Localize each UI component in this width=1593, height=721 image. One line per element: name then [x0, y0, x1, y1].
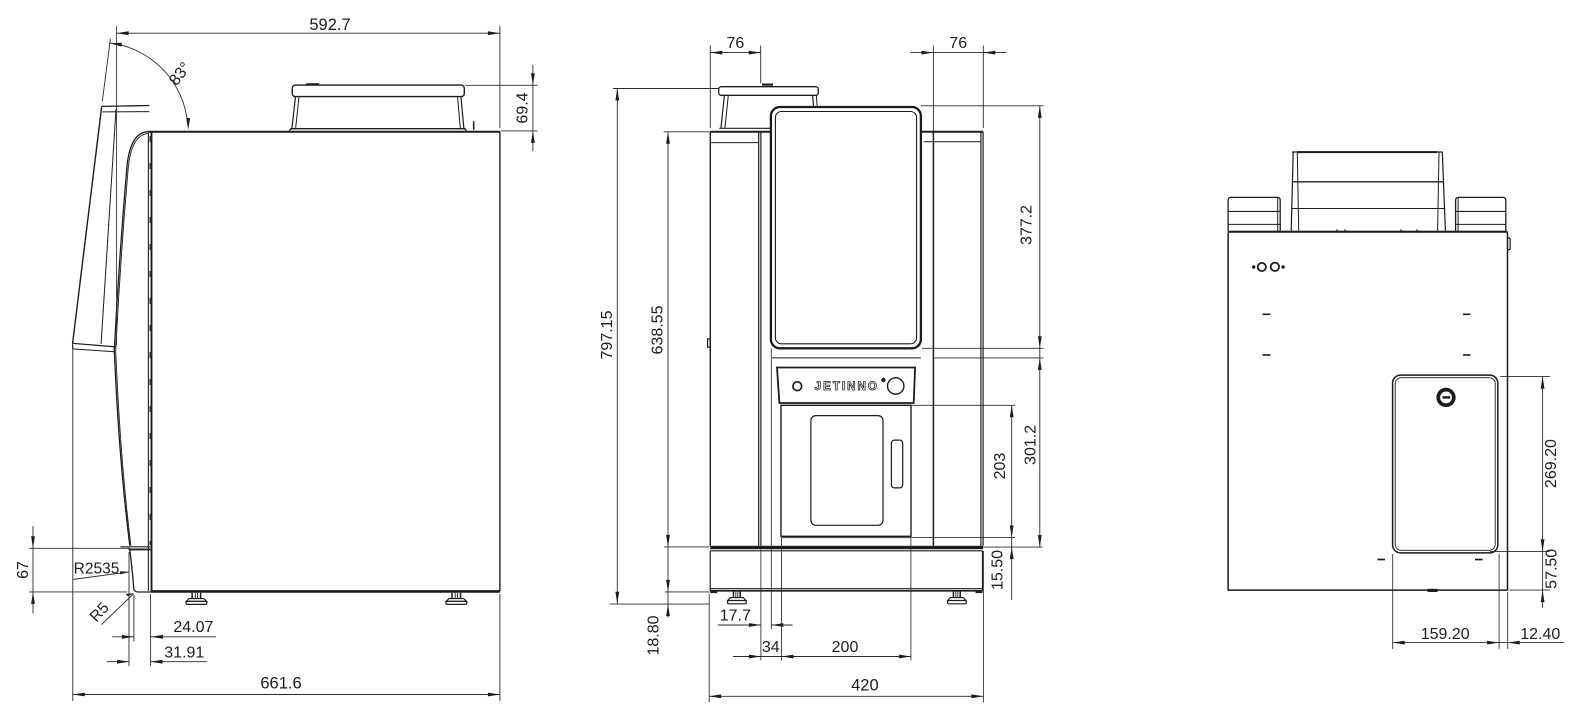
svg-text:17.7: 17.7	[720, 608, 751, 625]
svg-text:377.2: 377.2	[1019, 205, 1036, 245]
svg-text:200: 200	[832, 639, 859, 656]
svg-text:203: 203	[992, 453, 1009, 480]
svg-text:67: 67	[15, 561, 32, 579]
svg-text:JETINNO: JETINNO	[815, 380, 879, 393]
svg-text:269.20: 269.20	[1543, 439, 1560, 488]
svg-text:R2535: R2535	[74, 561, 120, 578]
svg-text:57.50: 57.50	[1544, 549, 1561, 589]
svg-text:797.15: 797.15	[599, 310, 616, 359]
svg-text:638.55: 638.55	[650, 305, 667, 354]
svg-text:18.80: 18.80	[646, 615, 663, 655]
svg-text:24.07: 24.07	[173, 619, 213, 636]
svg-text:31.91: 31.91	[164, 644, 204, 661]
svg-text:301.2: 301.2	[1023, 425, 1040, 465]
svg-text:76: 76	[949, 35, 967, 52]
svg-text:420: 420	[851, 677, 879, 695]
svg-text:159.20: 159.20	[1421, 626, 1470, 643]
svg-text:12.40: 12.40	[1520, 626, 1560, 643]
svg-text:15.50: 15.50	[990, 550, 1007, 590]
svg-text:34: 34	[762, 639, 780, 656]
svg-text:69.4: 69.4	[515, 92, 532, 123]
svg-text:76: 76	[727, 35, 745, 52]
svg-text:661.6: 661.6	[260, 675, 301, 693]
svg-text:592.7: 592.7	[309, 16, 350, 34]
